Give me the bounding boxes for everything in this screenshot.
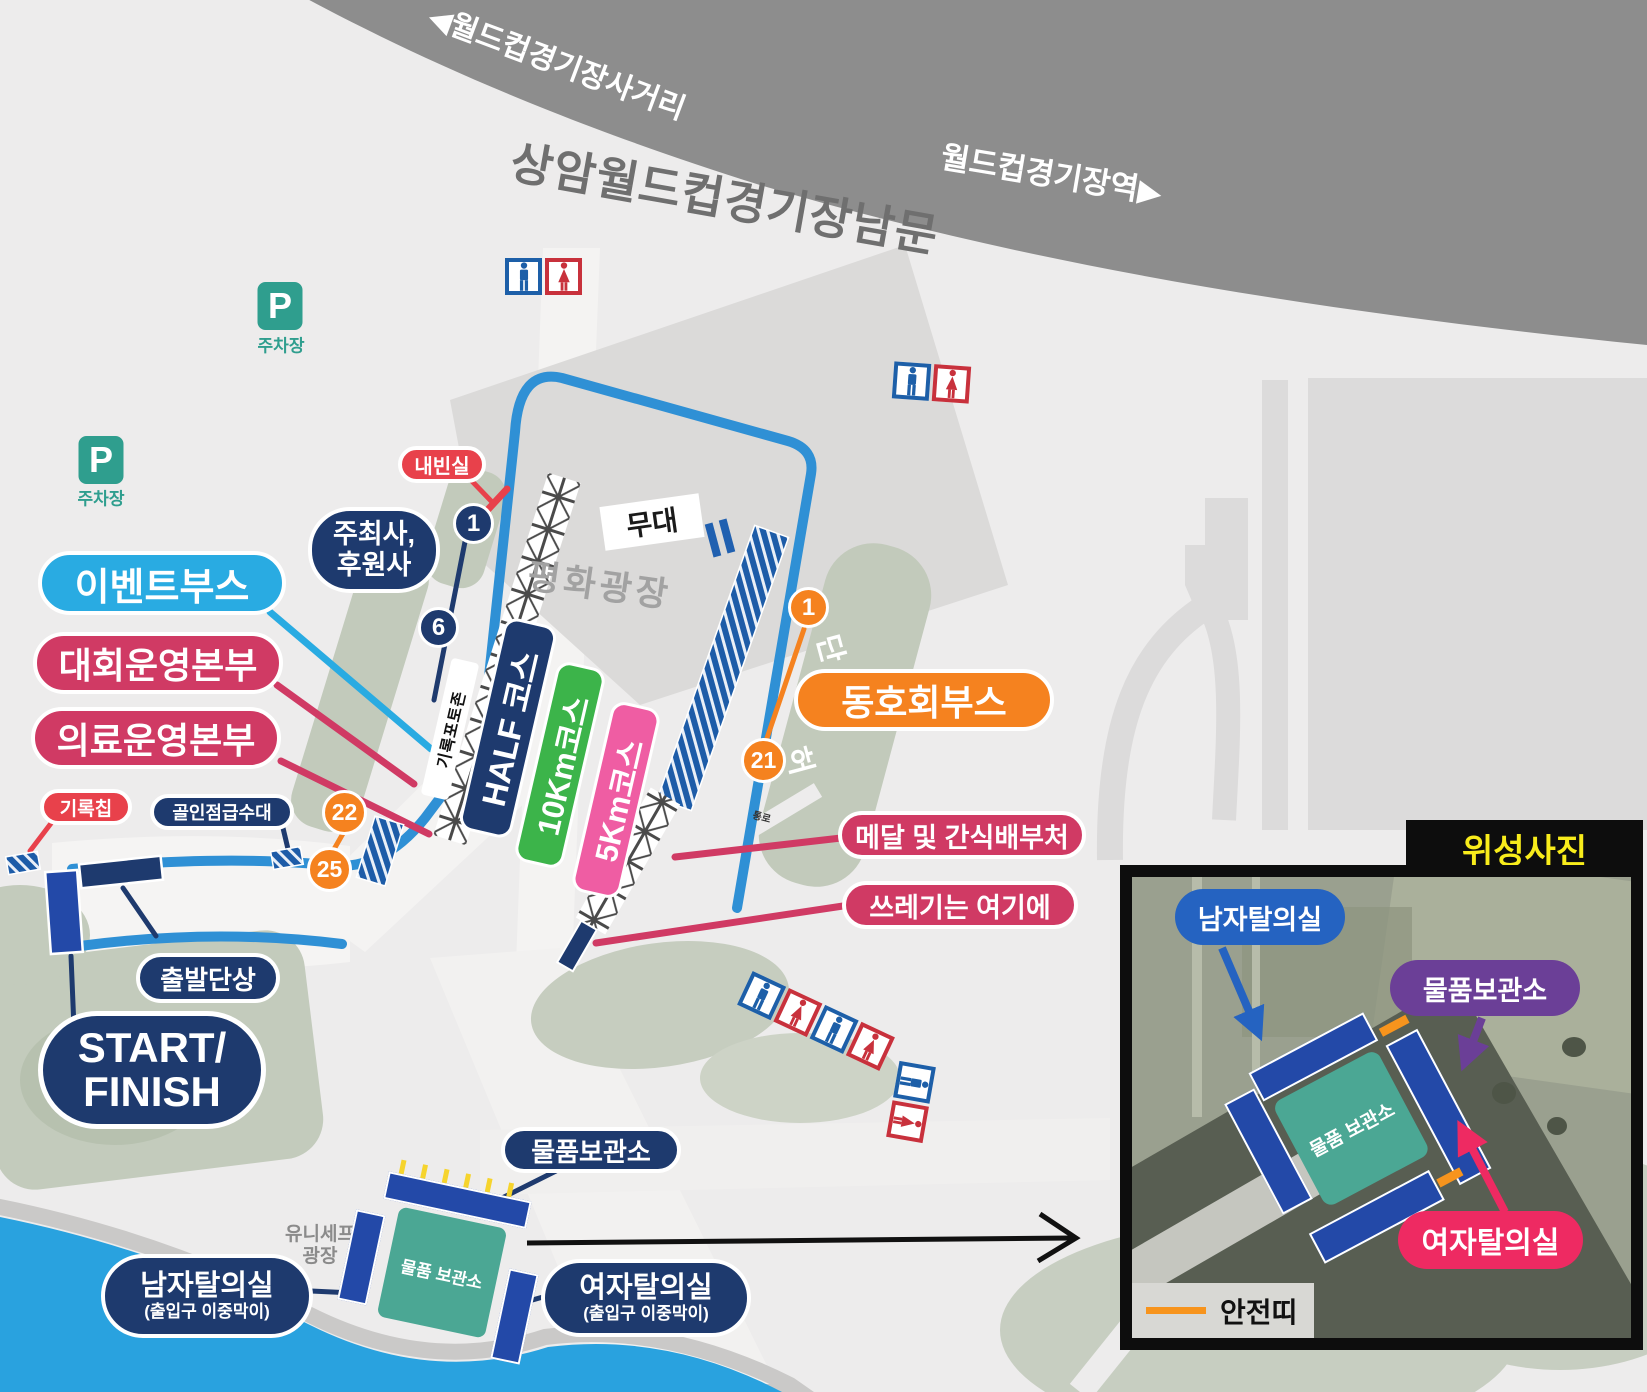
club-booth-pill: 동호회부스 <box>794 669 1054 731</box>
marker-21-orange: 21 <box>741 738 786 783</box>
flag-icon <box>506 1183 514 1198</box>
flag-icon <box>442 1169 450 1184</box>
inset-women-pill: 여자탈의실 <box>1398 1211 1583 1269</box>
marker-22-orange: 22 <box>322 790 367 835</box>
flag-icon <box>463 1173 471 1188</box>
marker-1-navy: 1 <box>453 503 494 544</box>
toilet-pair-top <box>505 258 582 295</box>
toilet-men-icon <box>505 258 542 295</box>
loop-road-2 <box>1212 612 1228 820</box>
block-right <box>1308 378 1647 830</box>
women-change-pill: 여자탈의실 (출입구 이중막이) <box>541 1259 751 1337</box>
parking-icon: P <box>79 436 124 484</box>
toilet-men-icon <box>892 361 931 400</box>
chip-mat <box>6 851 41 874</box>
inset-men-pill: 남자탈의실 <box>1175 889 1345 945</box>
storage-label-pill: 물품보관소 <box>501 1127 681 1173</box>
parking-label: 주차장 <box>258 332 305 357</box>
organizer-pill: 주최사, 후원사 <box>308 507 440 593</box>
medal-snack-pill: 메달 및 간식배부처 <box>838 811 1086 859</box>
vip-room-pill: 내빈실 <box>398 446 486 483</box>
storage-box: 물품 보관소 <box>377 1206 508 1338</box>
inset-storage-pill: 물품보관소 <box>1390 960 1580 1016</box>
safety-line-sample <box>1146 1307 1206 1314</box>
finish-water-pill: 골인점급수대 <box>150 794 294 830</box>
flag-icon <box>399 1160 407 1175</box>
toilet-women-icon <box>545 258 582 295</box>
satellite-inset: 물품 보관소 남자탈의실 물품보관소 여자탈의실 안전띠 <box>1120 865 1643 1350</box>
flag-icon <box>420 1164 428 1179</box>
inset-legend: 안전띠 <box>1132 1283 1314 1338</box>
parking-icon: P <box>258 282 303 330</box>
toilet-men-icon <box>893 1061 936 1104</box>
men-change-pill: 남자탈의실 (출입구 이중막이) <box>101 1254 313 1338</box>
marker-25-orange: 25 <box>307 847 352 892</box>
marker-6-navy: 6 <box>418 607 459 648</box>
toilet-women-icon <box>932 364 971 403</box>
toilet-women-icon <box>886 1100 929 1143</box>
loop-road-1 <box>1110 607 1205 860</box>
trash-here-pill: 쓰레기는 여기에 <box>842 881 1078 929</box>
start-podium-pill: 출발단상 <box>136 953 280 1003</box>
race-hq-pill: 대회운영본부 <box>33 632 283 694</box>
marker-1-orange: 1 <box>788 587 829 628</box>
road-right <box>1262 380 1288 830</box>
pointer-chip <box>30 822 52 851</box>
event-booth-pill: 이벤트부스 <box>38 551 286 615</box>
women-arrow <box>1462 1129 1505 1212</box>
event-map: ◀월드컵경기장사거리 월드컵경기장역▶ 상암월드컵경기장남문 P 주차장 P 주… <box>0 0 1647 1392</box>
toilet-pair-mid <box>892 361 971 403</box>
pointer-trash <box>596 906 843 943</box>
record-chip-pill: 기록칩 <box>40 789 132 825</box>
start-tower <box>45 870 83 954</box>
start-finish-pill: START/ FINISH <box>38 1011 266 1129</box>
flag-icon <box>485 1178 493 1193</box>
medical-hq-pill: 의료운영본부 <box>31 707 281 769</box>
men-arrow <box>1222 948 1258 1032</box>
storage-arrow <box>1465 1018 1482 1062</box>
parking-label: 주차장 <box>78 485 125 510</box>
